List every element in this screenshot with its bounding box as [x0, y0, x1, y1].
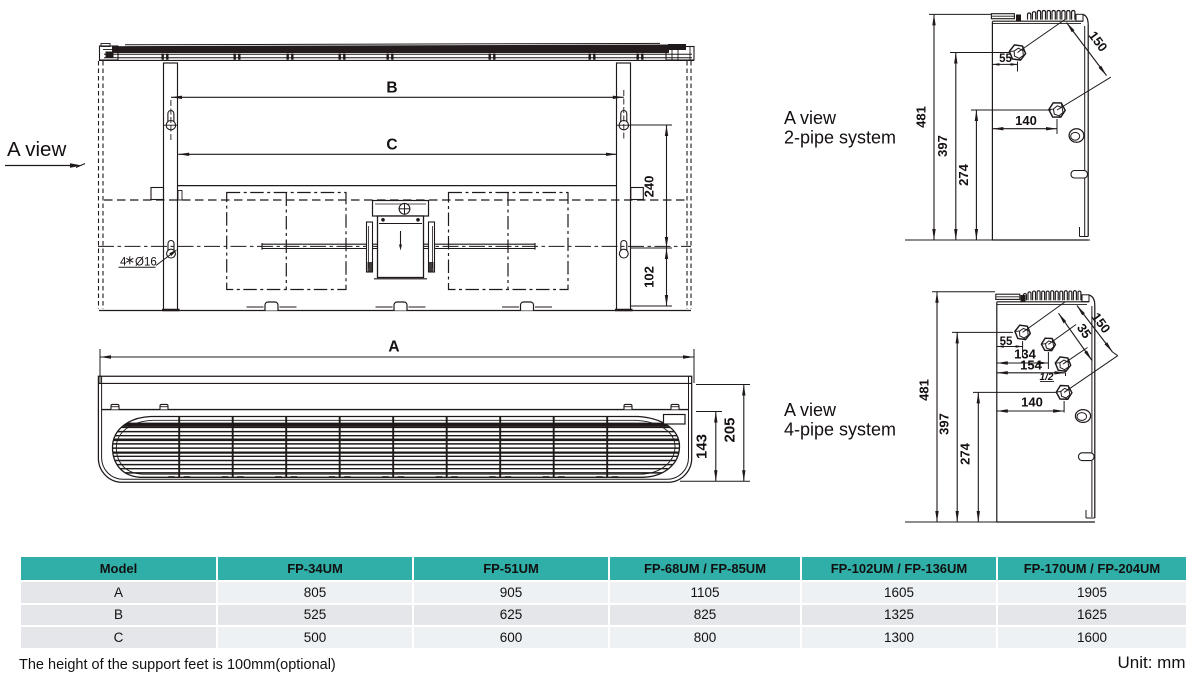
svg-text:A view: A view	[7, 138, 66, 161]
svg-text:140: 140	[1015, 113, 1037, 128]
svg-text:143: 143	[694, 434, 711, 459]
svg-text:481: 481	[917, 379, 932, 401]
svg-text:397: 397	[935, 135, 950, 157]
svg-text:C: C	[386, 137, 397, 154]
svg-text:Ø16: Ø16	[135, 256, 157, 268]
svg-text:102: 102	[642, 266, 657, 288]
svg-text:A view: A view	[784, 400, 837, 420]
svg-text:55: 55	[999, 53, 1012, 65]
svg-text:A: A	[388, 339, 399, 356]
svg-text:397: 397	[937, 413, 952, 435]
svg-text:140: 140	[1021, 395, 1043, 410]
svg-text:B: B	[386, 80, 397, 97]
svg-text:205: 205	[722, 417, 739, 442]
svg-text:4: 4	[120, 256, 127, 268]
svg-text:4-pipe system: 4-pipe system	[784, 420, 896, 440]
svg-text:274: 274	[958, 442, 973, 464]
svg-text:481: 481	[914, 106, 929, 128]
svg-text:240: 240	[642, 176, 657, 198]
svg-text:150: 150	[1086, 28, 1111, 54]
svg-text:2-pipe system: 2-pipe system	[784, 128, 896, 148]
svg-text:154: 154	[1020, 358, 1042, 373]
svg-text:274: 274	[956, 163, 971, 185]
svg-text:A view: A view	[784, 108, 837, 128]
